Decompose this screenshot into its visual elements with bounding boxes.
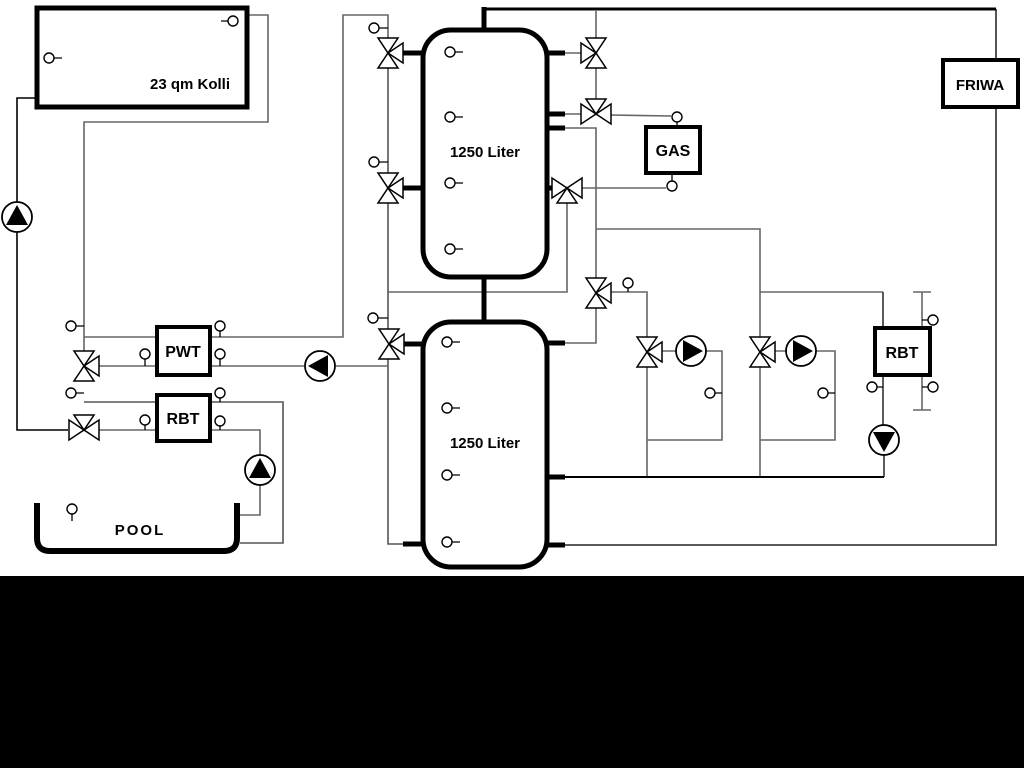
bottom-black-band	[0, 576, 1024, 768]
tank1-sensor-icon	[445, 178, 455, 188]
gas-feed-valve-lower	[581, 99, 611, 124]
tank1-sensor-icon	[445, 47, 455, 57]
pipe-solar-middle	[388, 68, 405, 544]
tank1-sensor-icon	[445, 112, 455, 122]
pipe-sensor-icon	[215, 416, 225, 426]
pool-sensor-icon	[67, 504, 77, 514]
heating-feed-valve	[586, 278, 611, 308]
pipe-sensor-icon	[928, 382, 938, 392]
pipe-sensor-icon	[140, 349, 150, 359]
buffer-tank-bottom-label: 1250 Liter	[450, 435, 520, 452]
gas-boiler-label: GAS	[656, 143, 691, 160]
hydraulic-schematic: 23 qm Kolli 1250 Liter 1250 Liter PWT RB…	[0, 0, 1024, 768]
pipe-sensor-icon	[140, 415, 150, 425]
hydraulic-schematic-canvas: 23 qm Kolli 1250 Liter 1250 Liter PWT RB…	[0, 0, 1024, 768]
tank2-sensor-icon	[442, 537, 452, 547]
solar-valve-tank1-lower	[378, 173, 403, 203]
heating-circuit2-mixing-valve	[750, 337, 775, 367]
pipe-sensor-icon	[623, 278, 633, 288]
pool-label: POOL	[115, 522, 166, 539]
solar-valve-tank1-upper	[378, 38, 403, 68]
gas-bottom-sensor-icon	[667, 181, 677, 191]
pipe-friwa-loop	[565, 9, 996, 545]
gas-return-valve	[552, 178, 582, 203]
pwt-pump	[305, 351, 335, 381]
buffer-tank-top-label: 1250 Liter	[450, 144, 520, 161]
rbt-pool-label: RBT	[167, 411, 200, 428]
heating-circuit1-pump	[676, 336, 706, 366]
pwt-label: PWT	[165, 344, 201, 361]
rbt-right-pump	[869, 425, 899, 455]
tank2-sensor-icon	[442, 403, 452, 413]
pipe-sensor-icon	[215, 388, 225, 398]
rbt-right-label: RBT	[886, 345, 919, 362]
collector-sensor-icon	[228, 16, 238, 26]
friwa-label: FRIWA	[956, 77, 1004, 94]
pipe-sensor-icon	[369, 157, 379, 167]
gas-top-sensor-icon	[672, 112, 682, 122]
pipe-sensor-icon	[369, 23, 379, 33]
heating-circuit2-pump	[786, 336, 816, 366]
pipe-sensor-icon	[66, 321, 76, 331]
solar-pump	[2, 202, 32, 232]
gas-feed-valve-upper	[581, 38, 606, 68]
pipe-valve7-to-tank2	[565, 308, 596, 343]
heating-circuit1-mixing-valve	[637, 337, 662, 367]
tank2-sensor-icon	[442, 337, 452, 347]
collector-sensor-icon	[44, 53, 54, 63]
pipe-sensor-icon	[818, 388, 828, 398]
pipe-sensor-icon	[928, 315, 938, 325]
pipe-heating-circuits	[596, 229, 883, 477]
pipe-sensor-icon	[66, 388, 76, 398]
pipe-sensor-icon	[215, 321, 225, 331]
solar-valve-tank2	[379, 329, 404, 359]
pipe-solar-return-black	[17, 98, 68, 430]
pwt-mixing-valve	[74, 351, 99, 381]
tank2-sensor-icon	[442, 470, 452, 480]
tank1-sensor-icon	[445, 244, 455, 254]
pool-pump	[245, 455, 275, 485]
pipe-sensor-icon	[705, 388, 715, 398]
pool-mixing-valve	[69, 415, 99, 440]
collector-label: 23 qm Kolli	[150, 76, 230, 93]
pipe-sensor-icon	[368, 313, 378, 323]
pipe-sensor-icon	[215, 349, 225, 359]
pipe-sensor-icon	[867, 382, 877, 392]
